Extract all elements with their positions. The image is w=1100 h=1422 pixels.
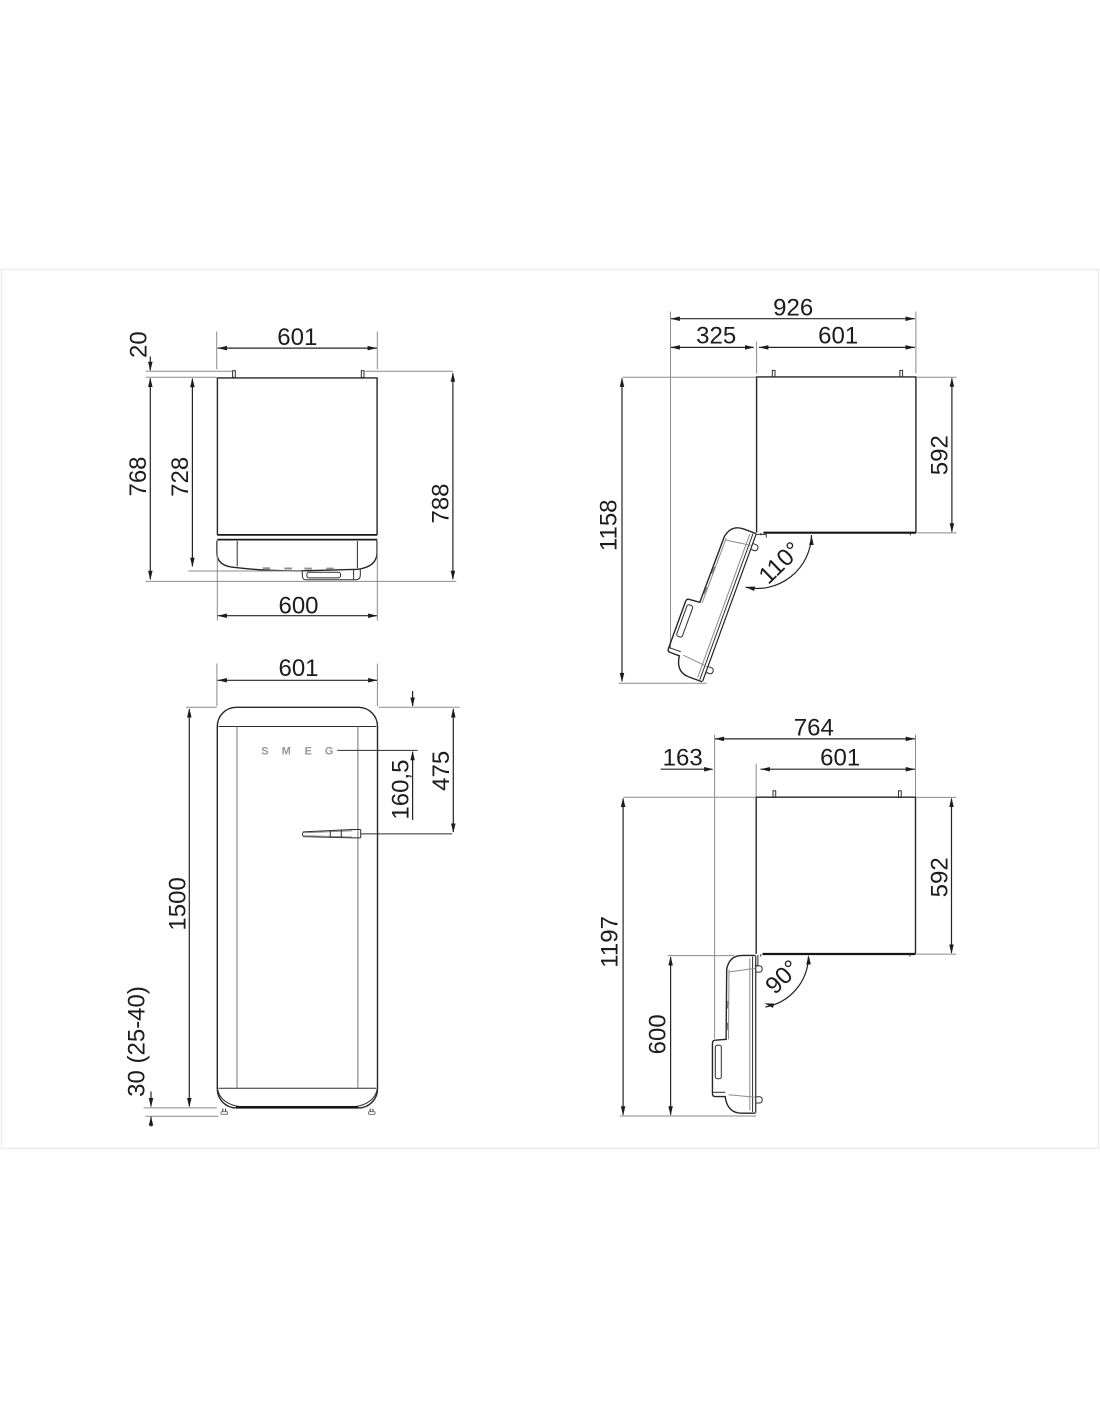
- svg-text:325: 325: [696, 323, 736, 350]
- svg-text:475: 475: [428, 751, 455, 791]
- svg-text:601: 601: [278, 655, 318, 682]
- svg-text:1158: 1158: [596, 499, 623, 551]
- svg-text:768: 768: [125, 456, 152, 496]
- svg-text:1500: 1500: [164, 877, 191, 930]
- svg-text:592: 592: [926, 857, 953, 897]
- svg-text:163: 163: [663, 745, 703, 772]
- svg-text:1197: 1197: [597, 916, 624, 968]
- svg-text:601: 601: [818, 323, 858, 350]
- svg-text:728: 728: [167, 457, 194, 497]
- svg-text:601: 601: [820, 745, 860, 772]
- svg-text:926: 926: [773, 295, 813, 322]
- svg-text:160,5: 160,5: [388, 760, 415, 820]
- svg-text:601: 601: [277, 324, 317, 351]
- svg-text:788: 788: [428, 483, 455, 523]
- svg-text:592: 592: [927, 435, 954, 475]
- svg-text:600: 600: [645, 1014, 672, 1054]
- svg-text:20: 20: [125, 331, 152, 358]
- svg-text:30 (25-40): 30 (25-40): [124, 986, 151, 1097]
- svg-text:764: 764: [794, 714, 834, 741]
- svg-text:M: M: [282, 745, 291, 757]
- svg-text:G: G: [325, 745, 333, 757]
- svg-text:E: E: [305, 745, 312, 757]
- svg-text:S: S: [261, 745, 268, 757]
